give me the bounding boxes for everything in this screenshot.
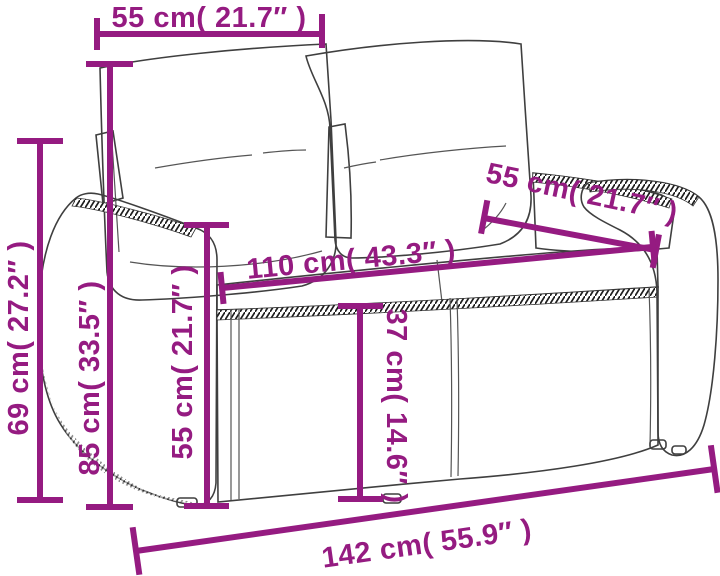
dim-seat-height — [338, 306, 383, 499]
back-cushion-right — [306, 41, 531, 258]
dim-label-seat-height: 37 cm( 14.6″ ) — [380, 309, 412, 504]
dim-label-armrest-height: 85 cm( 33.5″ ) — [74, 281, 106, 476]
dim-label-top-backrest-width: 55 cm( 21.7″ ) — [112, 2, 307, 34]
front-panel — [217, 287, 658, 502]
dimension-diagram: 55 cm( 21.7″ ) 55 cm( 21.7″ ) 110 cm( 43… — [0, 0, 720, 576]
front-panel-braid — [217, 287, 658, 320]
dim-label-inner-back-height: 55 cm( 21.7″ ) — [167, 265, 199, 460]
sofa-diagram-canvas: 55 cm( 21.7″ ) 55 cm( 21.7″ ) 110 cm( 43… — [0, 0, 720, 576]
left-armrest-braid — [72, 198, 196, 237]
dim-label-right-backrest-width: 55 cm( 21.7″ ) — [483, 157, 680, 229]
sofa-feet — [177, 440, 686, 507]
dim-label-back-height: 69 cm( 27.2″ ) — [3, 241, 35, 436]
